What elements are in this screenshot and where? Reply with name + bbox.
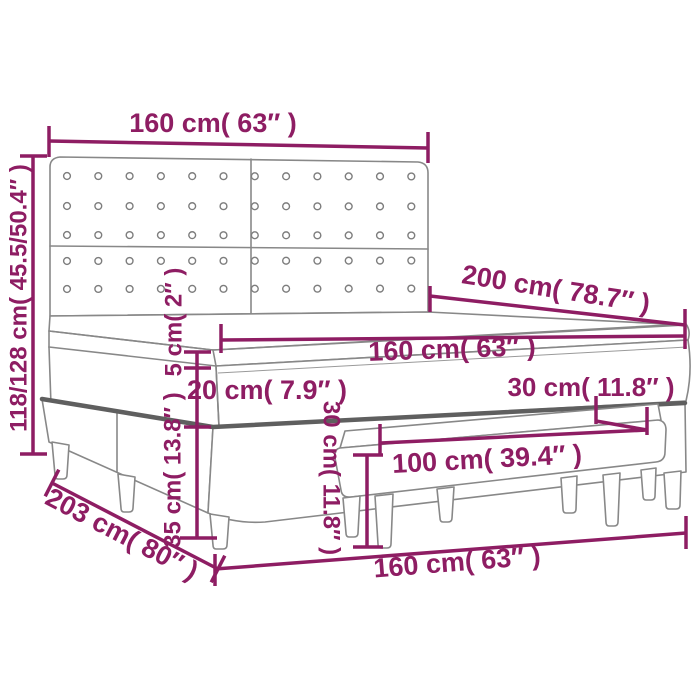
headboard-button xyxy=(377,173,384,180)
headboard-button xyxy=(220,257,227,264)
headboard-button xyxy=(408,232,415,239)
headboard-button xyxy=(158,203,165,210)
dim-headboard-height-label: 118/128 cm( 45.5/50.4″ ) xyxy=(6,164,33,432)
bench-back-leg xyxy=(561,476,577,513)
headboard-button xyxy=(283,173,290,180)
topper-left-bottom-edge xyxy=(49,347,216,366)
bench-back-leg xyxy=(641,468,656,500)
headboard-button xyxy=(189,173,196,180)
headboard-button xyxy=(377,232,384,239)
headboard-button xyxy=(314,257,321,264)
headboard-button xyxy=(158,173,165,180)
dim-bench-height-label: 30 cm( 11.8″ ) xyxy=(318,401,345,555)
headboard-button xyxy=(345,285,352,292)
dim-headboard-width: 160 cm( 63″ ) xyxy=(49,108,428,163)
headboard-button xyxy=(377,257,384,264)
headboard-button xyxy=(189,203,196,210)
dim-topper-thickness-label: 5 cm( 2″ ) xyxy=(161,268,188,377)
headboard-button xyxy=(158,232,165,239)
headboard-button xyxy=(408,203,415,210)
dimension-diagram: 160 cm( 63″ ) 118/128 cm( 45.5/50.4″ ) 2… xyxy=(0,0,700,700)
headboard-button xyxy=(283,285,290,292)
dim-headboard-height: 118/128 cm( 45.5/50.4″ ) xyxy=(6,156,48,454)
headboard-button xyxy=(251,203,258,210)
headboard-button xyxy=(314,232,321,239)
bench-front-leg xyxy=(603,473,620,526)
headboard-button xyxy=(126,286,133,293)
headboard-button xyxy=(64,203,71,210)
bed-leg xyxy=(52,442,69,479)
headboard-button xyxy=(220,285,227,292)
dim-bench-depth-label: 30 cm( 11.8″ ) xyxy=(507,372,674,402)
headboard-button xyxy=(314,203,321,210)
headboard-button xyxy=(64,286,71,293)
headboard-button xyxy=(126,203,133,210)
bench-front-leg xyxy=(437,487,454,522)
headboard-button xyxy=(126,173,133,180)
headboard-button xyxy=(64,173,71,180)
headboard-button xyxy=(283,203,290,210)
headboard-button xyxy=(95,203,102,210)
headboard-button xyxy=(189,232,196,239)
headboard-button xyxy=(314,285,321,292)
headboard-button xyxy=(408,285,415,292)
dim-base-width-label: 160 cm( 63″ ) xyxy=(372,540,541,583)
headboard-button xyxy=(345,232,352,239)
headboard-button xyxy=(408,173,415,180)
bench-front-leg xyxy=(375,494,393,548)
headboard-button xyxy=(251,173,258,180)
mattress-left-edge xyxy=(49,347,51,405)
bed-leg xyxy=(118,474,135,512)
headboard-button xyxy=(408,257,415,264)
diagram-canvas: 160 cm( 63″ ) 118/128 cm( 45.5/50.4″ ) 2… xyxy=(0,0,700,700)
headboard-button xyxy=(345,203,352,210)
headboard-button xyxy=(95,258,102,265)
headboard-button xyxy=(345,257,352,264)
headboard-button xyxy=(126,258,133,265)
dim-mattress-width-label: 160 cm( 63″ ) xyxy=(368,331,536,367)
headboard-button xyxy=(251,232,258,239)
bed-leg xyxy=(664,471,681,509)
bench-front-leg xyxy=(343,496,360,537)
headboard-button xyxy=(95,286,102,293)
headboard-button xyxy=(283,232,290,239)
headboard-button xyxy=(64,232,71,239)
headboard-button xyxy=(314,173,321,180)
headboard-button xyxy=(64,258,71,265)
headboard-button xyxy=(189,257,196,264)
headboard-button xyxy=(377,203,384,210)
headboard-button xyxy=(189,285,196,292)
headboard-button xyxy=(95,173,102,180)
dim-box-height-label: 35 cm( 13.8″ ) xyxy=(160,392,187,548)
headboard-button xyxy=(345,173,352,180)
headboard-button xyxy=(95,232,102,239)
headboard-button xyxy=(126,232,133,239)
headboard-button xyxy=(377,285,384,292)
headboard-button xyxy=(220,203,227,210)
headboard-button xyxy=(220,232,227,239)
headboard-button xyxy=(220,173,227,180)
headboard-button xyxy=(158,257,165,264)
dim-headboard-width-label: 160 cm( 63″ ) xyxy=(129,108,297,138)
headboard-panel xyxy=(50,157,428,316)
headboard-button xyxy=(283,257,290,264)
headboard-button xyxy=(251,285,258,292)
bed-leg xyxy=(210,514,229,549)
headboard-button xyxy=(251,257,258,264)
